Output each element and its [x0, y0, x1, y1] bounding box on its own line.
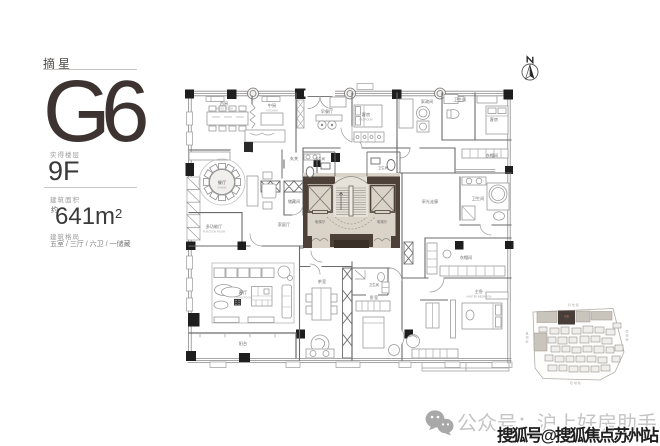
svg-text:客房: 客房 [490, 116, 498, 123]
svg-text:卫生间: 卫生间 [378, 165, 389, 170]
svg-text:卫生间: 卫生间 [454, 96, 467, 103]
svg-text:南 施 街: 南 施 街 [625, 329, 629, 342]
svg-text:家政间: 家政间 [421, 98, 434, 105]
svg-text:BEDROOM: BEDROOM [359, 118, 372, 122]
svg-text:主卧: 主卧 [475, 288, 483, 295]
svg-text:客房: 客房 [362, 111, 370, 118]
svg-text:家庭厅: 家庭厅 [278, 221, 291, 228]
svg-text:FUNCTION ROOM: FUNCTION ROOM [203, 230, 225, 234]
svg-text:多功能厅: 多功能厅 [206, 223, 223, 230]
svg-text:G6: G6 [564, 315, 569, 319]
svg-text:客厅: 客厅 [239, 289, 247, 296]
svg-text:卧室: 卧室 [370, 294, 378, 301]
svg-text:KITCHEN: KITCHEN [266, 109, 278, 113]
svg-text:电梯厅: 电梯厅 [315, 219, 326, 224]
svg-text:采光走廊: 采光走廊 [422, 198, 439, 205]
svg-text:卫生间: 卫生间 [472, 195, 485, 202]
svg-text:电梯厅: 电梯厅 [377, 219, 388, 224]
svg-text:茶室: 茶室 [318, 278, 326, 284]
svg-text:卫生间: 卫生间 [369, 282, 380, 287]
svg-text:衣帽间: 衣帽间 [486, 152, 499, 159]
svg-text:储藏间: 储藏间 [288, 198, 301, 205]
svg-text:玄关: 玄关 [290, 155, 298, 162]
svg-text:卫生间: 卫生间 [315, 156, 326, 161]
svg-text:中厨: 中厨 [268, 102, 276, 109]
svg-text:星 湖 街: 星 湖 街 [525, 331, 529, 344]
svg-text:科 技 路: 科 技 路 [568, 302, 579, 307]
svg-text:阳台: 阳台 [239, 340, 247, 347]
svg-text:早餐厅: 早餐厅 [321, 108, 334, 115]
svg-text:LIVING ROOM: LIVING ROOM [234, 296, 251, 300]
svg-text:餐厅: 餐厅 [218, 179, 226, 186]
svg-text:旺 墩 路: 旺 墩 路 [570, 380, 581, 385]
svg-text:DINING ROOM: DINING ROOM [215, 107, 233, 111]
svg-text:衣帽间: 衣帽间 [460, 254, 473, 261]
svg-text:MASTER BEDROOM: MASTER BEDROOM [467, 295, 492, 299]
svg-text:DINING: DINING [217, 186, 226, 190]
